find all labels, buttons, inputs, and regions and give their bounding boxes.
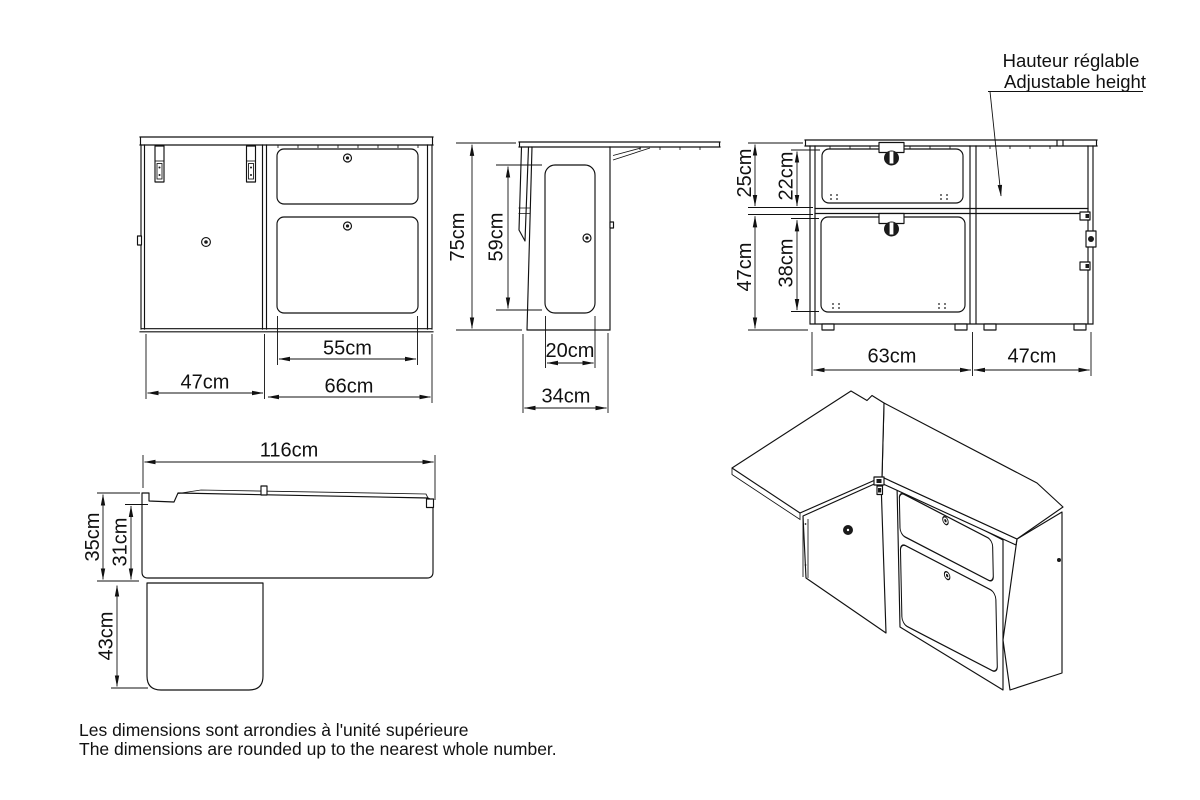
dim-label: 55cm — [323, 338, 372, 360]
dimension-rear-right-width: 47cm — [974, 332, 1091, 376]
hinge-icon — [247, 146, 256, 182]
dim-label: 22cm — [776, 152, 798, 201]
dim-label: 20cm — [546, 340, 595, 362]
dim-label: 25cm — [734, 149, 756, 198]
table-support-bracket — [613, 148, 650, 160]
countertop — [140, 137, 433, 148]
footer-note-fr: Les dimensions sont arrondies à l'unité … — [79, 720, 469, 740]
dimension-side-height: 75cm — [447, 143, 522, 330]
rear-view: Hauteur réglable Adjustable height 25cm … — [734, 50, 1146, 376]
keyhole-icon — [202, 238, 211, 247]
door-catch — [138, 236, 142, 245]
dimension-top-total-width: 116cm — [143, 440, 435, 501]
annotation-label-fr: Hauteur réglable — [1003, 50, 1140, 71]
hinge-icon — [155, 146, 164, 182]
dimension-rear-left-width: 63cm — [812, 332, 973, 376]
dim-label: 47cm — [734, 243, 756, 292]
cabinet-outline — [527, 147, 610, 330]
countertop — [805, 140, 1097, 149]
foot — [955, 324, 967, 330]
dim-label: 31cm — [110, 518, 132, 567]
dimension-top-table-depth: 43cm — [96, 586, 149, 688]
dimension-side-door-width: 20cm — [546, 316, 596, 368]
dim-label: 38cm — [776, 239, 798, 288]
dim-label: 66cm — [325, 376, 374, 398]
dim-label: 35cm — [82, 513, 104, 562]
dimension-rear-upper-section: 25cm — [734, 143, 813, 208]
latch-icon — [879, 214, 904, 237]
dimension-rear-lower-opening: 38cm — [776, 219, 820, 312]
dim-label: 75cm — [447, 213, 469, 262]
hinge-dots — [830, 194, 948, 200]
foot — [1074, 324, 1086, 330]
door-panel — [545, 165, 595, 313]
dimension-front-door: 47cm — [146, 334, 265, 399]
dimension-side-door-height: 59cm — [486, 165, 543, 310]
front-view: 55cm 47cm 66cm — [138, 137, 434, 403]
dimension-rear-lower-section: 47cm — [734, 215, 813, 331]
side-latch — [610, 222, 614, 228]
dim-label: 116cm — [260, 440, 319, 462]
dim-label: 59cm — [486, 213, 508, 262]
dim-label: 47cm — [1008, 346, 1057, 368]
footer-note-en: The dimensions are rounded up to the nea… — [79, 739, 557, 759]
foot — [984, 324, 996, 330]
dim-label: 47cm — [181, 372, 230, 394]
cabinet-outline — [138, 145, 434, 332]
dimension-front-opening: 55cm — [278, 316, 418, 365]
folding-table — [147, 583, 263, 690]
adjustable-shelf-line — [815, 209, 1088, 214]
lid-latch — [261, 486, 267, 495]
isometric-view — [732, 391, 1063, 690]
right-tab — [427, 499, 434, 508]
latch-icon — [879, 143, 904, 166]
end-latch — [1057, 558, 1061, 562]
wall-bracket — [519, 147, 531, 241]
countertop-with-table — [519, 142, 720, 160]
dim-label: 34cm — [542, 386, 591, 408]
annotation-label-en: Adjustable height — [1004, 71, 1146, 92]
footer-notes: Les dimensions sont arrondies à l'unité … — [79, 720, 557, 759]
side-view: 75cm 59cm 20cm 34cm — [447, 142, 720, 413]
body-outline — [142, 493, 433, 578]
dim-label: 43cm — [96, 612, 118, 661]
drawer-flap-bottom — [277, 217, 418, 313]
hinge-dots — [832, 303, 946, 309]
foot — [822, 324, 834, 330]
technical-drawing-page: 55cm 47cm 66cm — [0, 0, 1200, 800]
top-view: 116cm 35cm 31cm 43cm — [82, 440, 435, 691]
adjustable-height-annotation: Hauteur réglable Adjustable height — [988, 50, 1146, 196]
furniture-dimension-drawing: 55cm 47cm 66cm — [0, 0, 1200, 800]
drawer-flap-top — [277, 149, 418, 204]
cabinet-outline — [810, 146, 1093, 330]
leader-arrow — [990, 92, 1001, 197]
dimension-rear-upper-opening: 22cm — [776, 150, 821, 206]
dim-label: 63cm — [868, 346, 917, 368]
